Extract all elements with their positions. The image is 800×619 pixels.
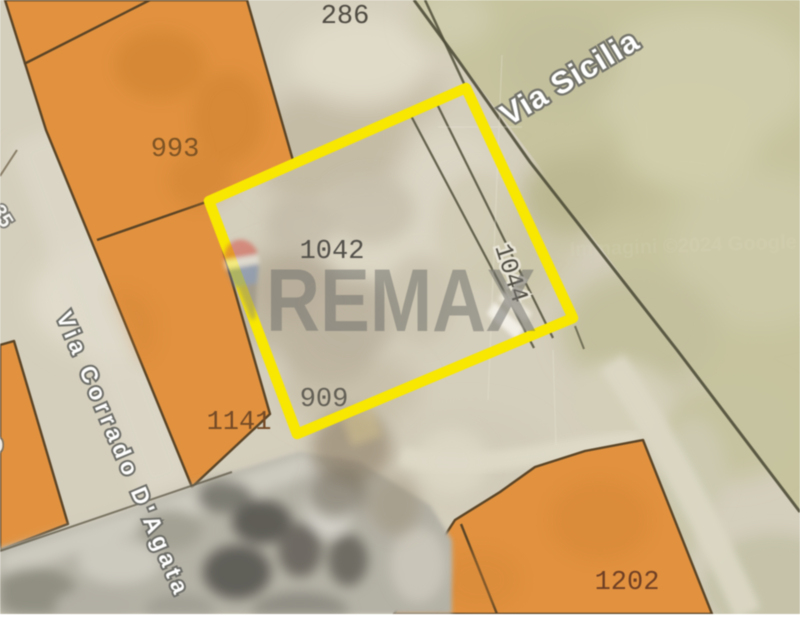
svg-text:REMAX: REMAX xyxy=(266,250,536,350)
svg-text:1202: 1202 xyxy=(595,568,660,598)
svg-text:993: 993 xyxy=(151,135,200,165)
svg-text:1141: 1141 xyxy=(207,408,272,438)
svg-text:286: 286 xyxy=(321,2,370,32)
svg-text:0: 0 xyxy=(0,435,3,457)
